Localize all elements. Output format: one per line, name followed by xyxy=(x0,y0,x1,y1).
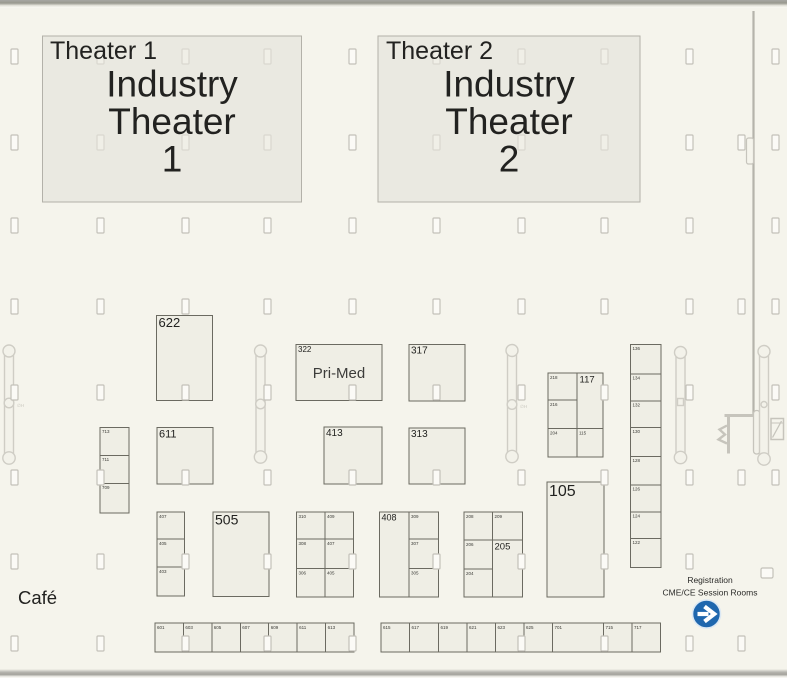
svg-text:615: 615 xyxy=(383,625,391,630)
svg-text:122: 122 xyxy=(633,540,641,545)
svg-text:132: 132 xyxy=(633,402,641,407)
svg-text:405: 405 xyxy=(159,541,167,546)
svg-text:Café: Café xyxy=(18,587,57,608)
svg-text:105: 105 xyxy=(549,483,576,500)
svg-text:408: 408 xyxy=(382,513,397,523)
svg-text:607: 607 xyxy=(242,625,250,630)
svg-text:307: 307 xyxy=(411,541,419,546)
svg-text:CME/CE Session Rooms: CME/CE Session Rooms xyxy=(663,588,758,598)
svg-text:405: 405 xyxy=(327,571,335,576)
svg-text:617: 617 xyxy=(412,625,420,630)
svg-text:204: 204 xyxy=(550,431,558,436)
svg-text:403: 403 xyxy=(159,569,167,574)
svg-text:126: 126 xyxy=(633,487,641,492)
svg-text:305: 305 xyxy=(411,571,419,576)
svg-text:Pri-Med: Pri-Med xyxy=(313,365,366,382)
svg-text:204: 204 xyxy=(466,571,474,576)
svg-text:Industry: Industry xyxy=(443,64,575,105)
svg-text:205: 205 xyxy=(495,542,511,553)
svg-text:621: 621 xyxy=(469,625,477,630)
svg-text:Registration: Registration xyxy=(687,575,733,585)
svg-text:505: 505 xyxy=(215,511,239,527)
svg-text:409: 409 xyxy=(327,514,335,519)
svg-text:128: 128 xyxy=(633,458,641,463)
svg-text:619: 619 xyxy=(441,625,449,630)
svg-text:206: 206 xyxy=(466,542,474,547)
svg-text:Theater 1: Theater 1 xyxy=(50,37,157,65)
svg-text:115: 115 xyxy=(579,431,587,436)
svg-text:715: 715 xyxy=(606,625,614,630)
svg-text:216: 216 xyxy=(550,402,558,407)
svg-text:Industry: Industry xyxy=(106,64,238,105)
svg-text:Theater: Theater xyxy=(108,101,236,142)
svg-text:310: 310 xyxy=(299,514,307,519)
svg-text:117: 117 xyxy=(580,375,595,386)
svg-text:603: 603 xyxy=(185,625,193,630)
svg-text:611: 611 xyxy=(159,429,177,441)
svg-text:Theater 2: Theater 2 xyxy=(386,37,493,65)
svg-text:209: 209 xyxy=(495,514,503,519)
svg-text:136: 136 xyxy=(633,346,641,351)
svg-text:322: 322 xyxy=(298,345,312,354)
svg-text:317: 317 xyxy=(411,346,428,357)
svg-text:∅H: ∅H xyxy=(17,403,24,408)
svg-text:605: 605 xyxy=(214,625,222,630)
svg-text:Theater: Theater xyxy=(445,101,573,142)
svg-text:622: 622 xyxy=(159,315,181,330)
svg-text:625: 625 xyxy=(526,625,534,630)
svg-text:208: 208 xyxy=(466,514,474,519)
svg-text:407: 407 xyxy=(159,514,167,519)
svg-text:2: 2 xyxy=(499,139,520,180)
svg-text:701: 701 xyxy=(555,625,563,630)
svg-text:130: 130 xyxy=(633,429,641,434)
svg-text:1: 1 xyxy=(162,139,183,180)
svg-text:218: 218 xyxy=(550,375,558,380)
svg-text:306: 306 xyxy=(299,571,307,576)
svg-text:134: 134 xyxy=(633,376,641,381)
svg-text:313: 313 xyxy=(411,429,428,440)
svg-text:709: 709 xyxy=(102,485,110,490)
svg-text:713: 713 xyxy=(102,429,110,434)
svg-text:309: 309 xyxy=(411,514,419,519)
svg-text:407: 407 xyxy=(327,541,335,546)
svg-text:601: 601 xyxy=(157,625,165,630)
svg-text:717: 717 xyxy=(634,625,642,630)
svg-text:308: 308 xyxy=(299,541,307,546)
svg-text:711: 711 xyxy=(102,457,110,462)
svg-text:613: 613 xyxy=(328,625,336,630)
svg-text:609: 609 xyxy=(271,625,279,630)
svg-text:413: 413 xyxy=(326,428,343,439)
svg-text:623: 623 xyxy=(498,625,506,630)
svg-text:611: 611 xyxy=(299,625,307,630)
svg-text:124: 124 xyxy=(633,513,641,518)
svg-text:∅H: ∅H xyxy=(520,404,527,409)
